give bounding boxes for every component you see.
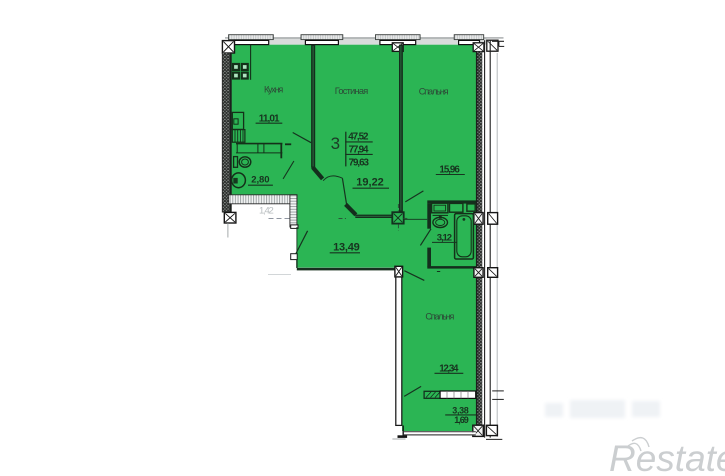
svg-text:15,96: 15,96 bbox=[439, 165, 460, 176]
svg-text:Гостиная: Гостиная bbox=[335, 86, 368, 96]
svg-text:Спальня: Спальня bbox=[425, 312, 454, 322]
svg-text:Restate: Restate bbox=[609, 438, 725, 476]
svg-text:Спальня: Спальня bbox=[419, 87, 449, 97]
svg-text:79,63: 79,63 bbox=[349, 158, 370, 169]
svg-text:3,12: 3,12 bbox=[437, 232, 452, 243]
svg-text:19,22: 19,22 bbox=[356, 177, 384, 189]
svg-text:2,80: 2,80 bbox=[251, 174, 269, 185]
svg-text:47,52: 47,52 bbox=[348, 132, 369, 143]
svg-text:3: 3 bbox=[331, 134, 340, 153]
svg-text:12,34: 12,34 bbox=[439, 363, 459, 374]
svg-text:13,49: 13,49 bbox=[333, 242, 360, 254]
svg-text:1,42: 1,42 bbox=[259, 206, 274, 217]
svg-text:1,69: 1,69 bbox=[454, 415, 469, 425]
svg-text:Кухня: Кухня bbox=[264, 85, 283, 95]
svg-text:3,38: 3,38 bbox=[452, 405, 469, 415]
